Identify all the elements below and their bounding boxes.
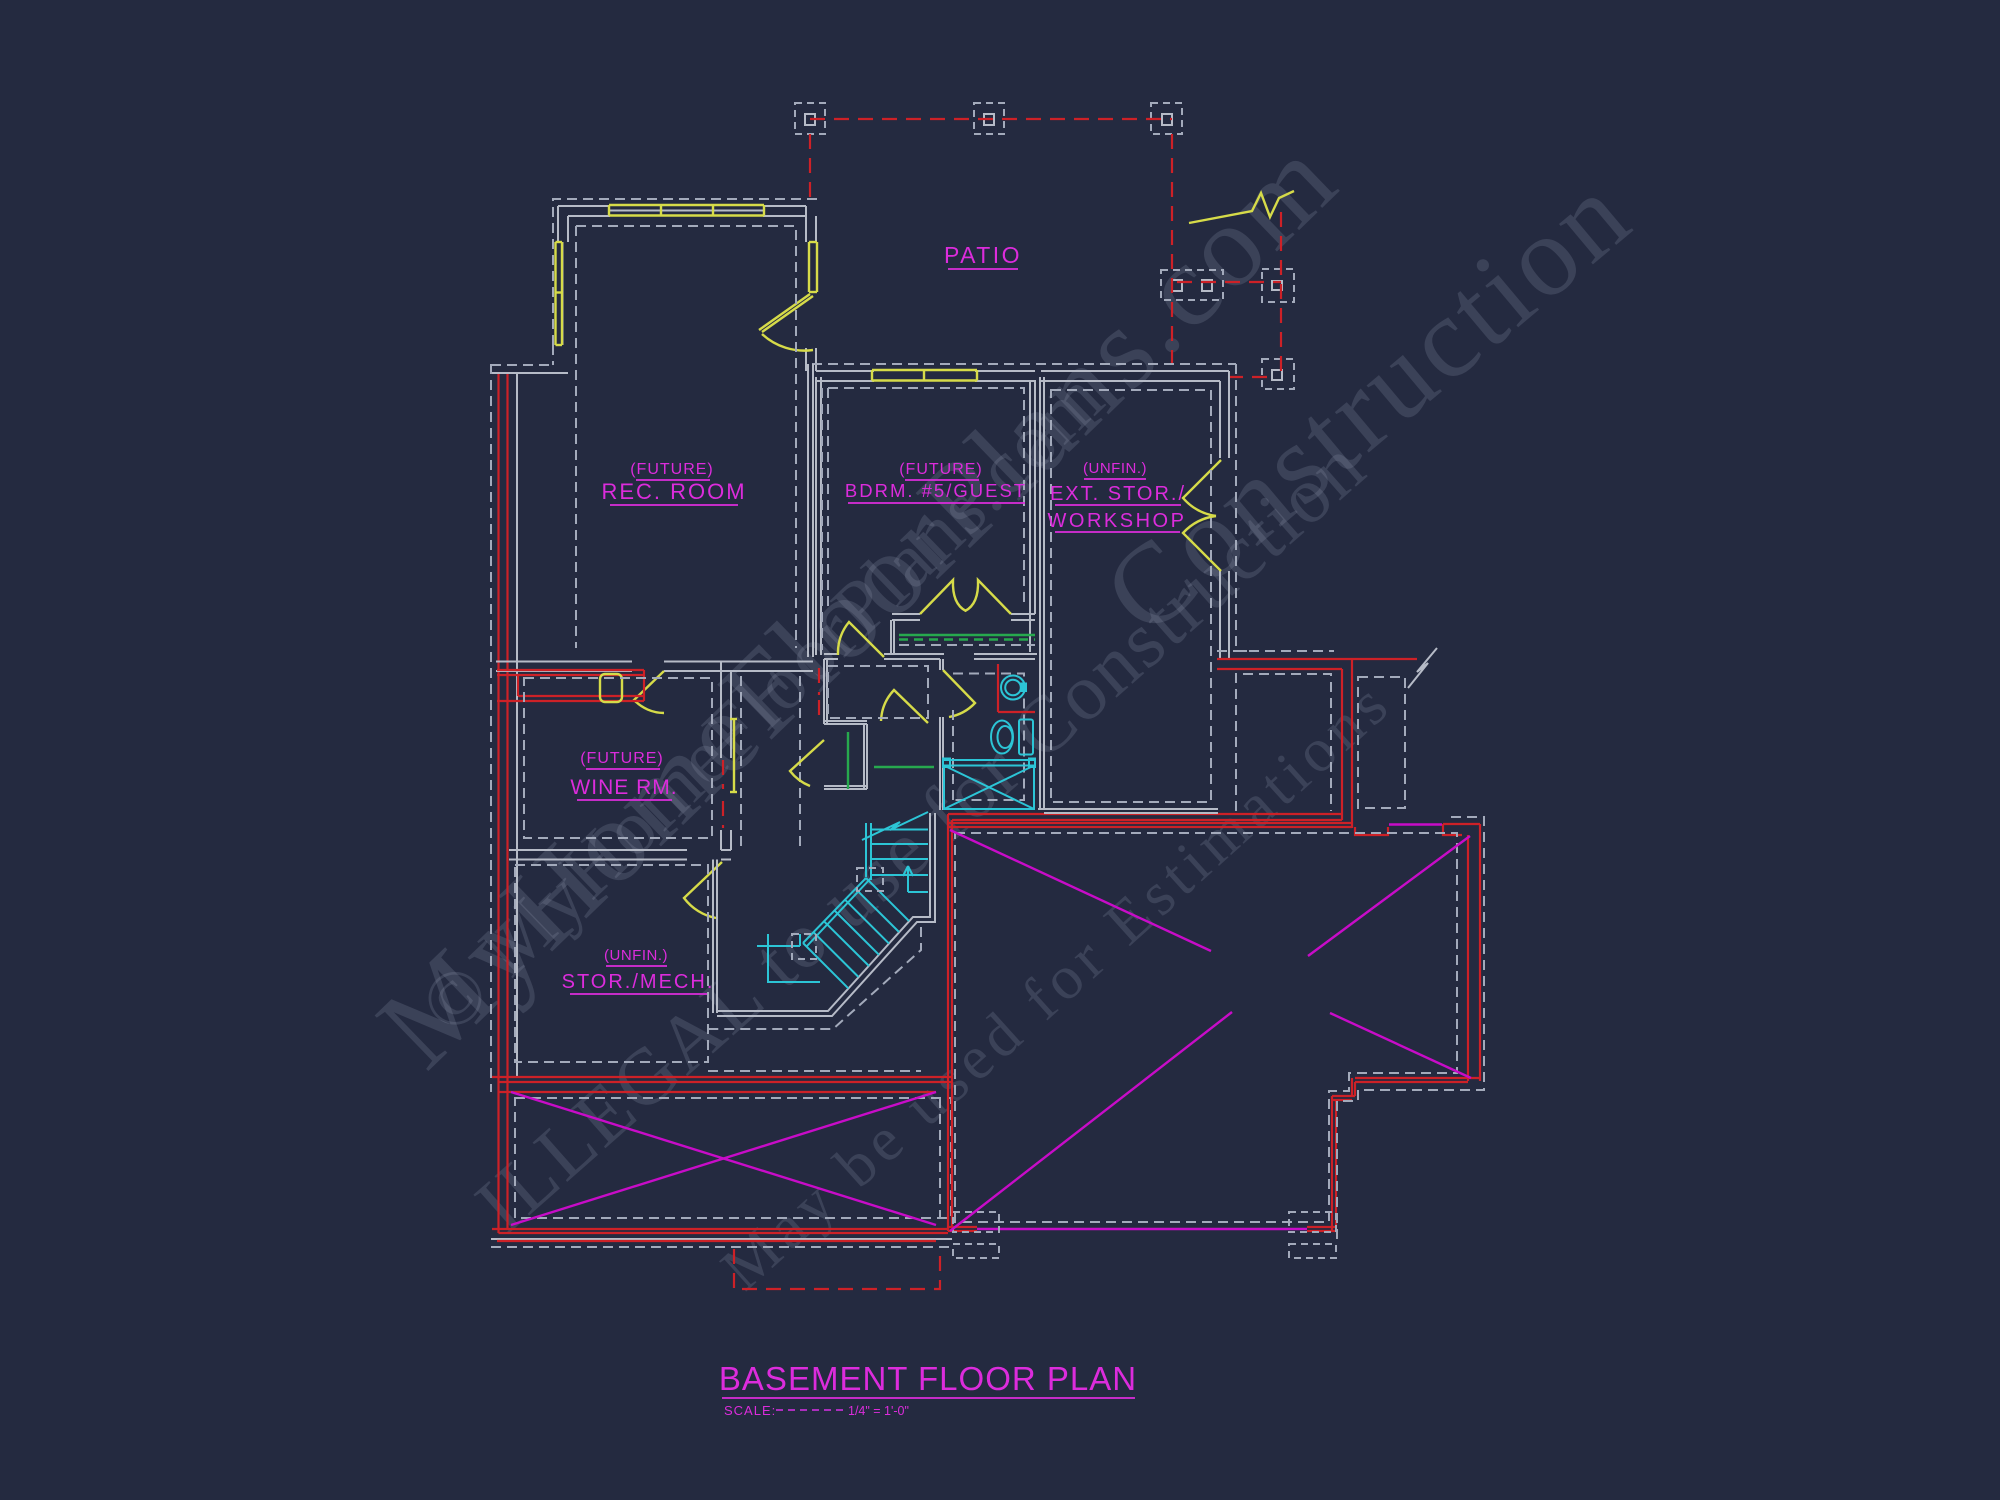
svg-text:(UNFIN.): (UNFIN.): [1083, 460, 1147, 477]
svg-text:(UNFIN.): (UNFIN.): [604, 947, 668, 964]
svg-text:(FUTURE): (FUTURE): [580, 750, 664, 767]
svg-text:REC. ROOM: REC. ROOM: [601, 479, 746, 504]
svg-text:1/4" = 1'-0": 1/4" = 1'-0": [848, 1404, 909, 1418]
svg-text:WINE RM.: WINE RM.: [570, 776, 677, 799]
svg-text:EXT. STOR./: EXT. STOR./: [1050, 483, 1186, 505]
svg-text:BDRM. #5/GUEST: BDRM. #5/GUEST: [845, 480, 1027, 501]
svg-text:STOR./MECH.: STOR./MECH.: [562, 971, 715, 993]
svg-text:WORKSHOP: WORKSHOP: [1048, 510, 1187, 532]
svg-text:PATIO: PATIO: [944, 242, 1022, 268]
svg-text:(FUTURE): (FUTURE): [899, 461, 983, 478]
svg-text:BASEMENT FLOOR PLAN: BASEMENT FLOOR PLAN: [719, 1360, 1137, 1397]
svg-text:(FUTURE): (FUTURE): [630, 461, 714, 478]
svg-text:SCALE:: SCALE:: [724, 1403, 776, 1418]
